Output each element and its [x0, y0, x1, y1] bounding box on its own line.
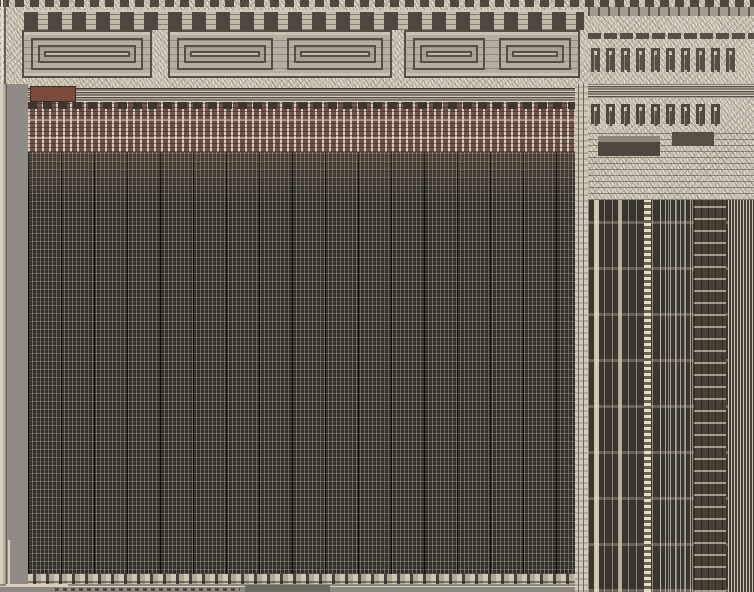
io-cell-column: [694, 200, 726, 592]
array-right-gap-strip: [575, 84, 588, 592]
bus-line-group: [660, 200, 694, 592]
top-right-metal-band: [588, 7, 754, 16]
standard-cell-block: [168, 30, 392, 78]
gap-strip-line: [578, 84, 579, 592]
driver-cap-row: [28, 102, 575, 109]
top-logic-band: [20, 28, 586, 82]
left-edge-light-trace: [1, 0, 3, 86]
gap-strip-line: [583, 84, 584, 592]
bright-bus-column: [594, 200, 599, 592]
hook-cell: [591, 104, 600, 124]
hook-cell: [606, 48, 615, 72]
hook-cell: [666, 104, 675, 124]
sense-bus-field: [588, 200, 754, 592]
column-hook-cell-row: [589, 98, 754, 130]
top-right-hook-cell-row: [589, 40, 754, 78]
hook-cell: [666, 48, 675, 72]
hook-cell: [681, 48, 690, 72]
die-photo: [0, 0, 754, 592]
top-right-segmented-line: [588, 33, 754, 39]
standard-cell-block: [22, 30, 152, 78]
bottom-dark-block: [245, 585, 330, 592]
hook-cell: [696, 104, 705, 124]
standard-cell-block: [404, 30, 580, 78]
driver-metal-line: [28, 137, 575, 139]
hook-cell: [711, 104, 720, 124]
top-edge-cell-dashes: [0, 0, 754, 7]
hook-cell: [681, 104, 690, 124]
nested-logic-cell: [31, 38, 143, 70]
hook-cell: [606, 104, 615, 124]
red-contact-block: [30, 86, 76, 102]
left-field-strip: [0, 84, 28, 592]
hook-cell: [636, 48, 645, 72]
column-bus-stripes: [588, 84, 754, 98]
memory-array: [28, 152, 575, 574]
hook-cell: [651, 48, 660, 72]
bottom-dash-cells: [55, 588, 240, 591]
mux-dark-block: [672, 132, 714, 146]
hook-cell: [711, 48, 720, 72]
driver-metal-line: [28, 119, 575, 121]
column-mux-region: [588, 130, 754, 200]
hook-cell: [621, 104, 630, 124]
hook-cell: [726, 48, 735, 72]
left-edge-dark-trace: [4, 0, 6, 86]
left-strip-line: [3, 84, 5, 592]
bottom-left-l-trace: [8, 540, 10, 588]
mux-dark-block: [598, 136, 660, 156]
hook-cell: [621, 48, 630, 72]
bright-bus-column: [618, 200, 622, 592]
edge-bus-stripes: [728, 200, 754, 592]
bottom-left-l-trace-horizontal: [6, 584, 68, 586]
nested-logic-cell: [287, 38, 383, 70]
nested-logic-cell: [499, 38, 571, 70]
hook-cell: [591, 48, 600, 72]
top-cell-row: [24, 10, 584, 30]
left-strip-line: [6, 84, 7, 592]
dotted-via-column: [644, 200, 651, 592]
hook-cell: [651, 104, 660, 124]
nested-logic-cell: [177, 38, 273, 70]
hook-cell: [696, 48, 705, 72]
hook-cell: [636, 104, 645, 124]
nested-logic-cell: [413, 38, 485, 70]
word-driver-row: [28, 102, 575, 152]
bottom-field-strip: [0, 584, 575, 592]
